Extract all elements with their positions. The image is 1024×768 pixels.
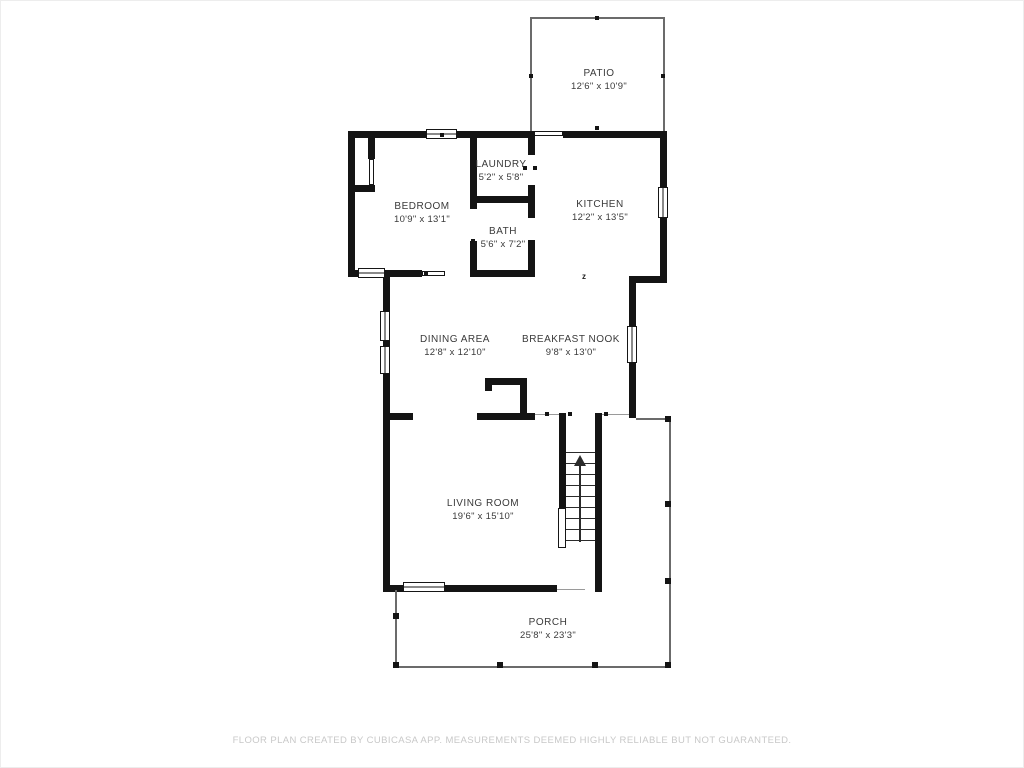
patio-tick-top [595,16,599,20]
window-dining-upper [380,311,390,341]
room-label-living-room: LIVING ROOM 19'6" x 15'10" [447,497,519,523]
room-label-breakfast-nook: BREAKFAST NOOK 9'8" x 13'0" [522,333,620,359]
wall-stair-right [595,413,602,592]
porch-post [665,501,671,507]
floor-plan-canvas: PATIO 12'6" x 10'9" LAUNDRY 5'2" x 5'8" … [0,0,1024,768]
porch-post [665,416,671,422]
tick [631,390,635,394]
tick [545,412,549,416]
patio-tick-right [661,74,665,78]
tick [424,272,428,276]
porch-post [592,662,598,668]
wall-bedroom-left [348,131,355,277]
porch-post [497,662,503,668]
wall-bath-right-upper [528,203,535,218]
wall-pantry-bottom [477,413,535,420]
tick [533,166,537,170]
closet-door [369,159,374,185]
porch-post [665,578,671,584]
wall-stair-left [559,413,566,508]
porch-outline-bottom [395,666,671,668]
stairs-up-arrow-icon [574,455,586,466]
room-label-laundry: LAUNDRY 5'2" x 5'8" [475,158,526,184]
tick [440,133,444,137]
room-label-bedroom: BEDROOM 10'9" x 13'1" [394,200,450,226]
tick [471,205,475,209]
wall-bedroom-bottom-interior [390,270,422,277]
tick [467,585,471,589]
stair-railing [558,508,566,548]
room-label-kitchen: KITCHEN 12'2" x 13'5" [572,198,628,224]
stairs-direction-line [579,466,581,542]
room-label-bath: BATH 5'6" x 7'2" [481,225,526,251]
wall-closet-right [368,131,375,159]
room-label-porch: PORCH 25'8" x 23'3" [520,616,576,642]
porch-outline-right [669,418,671,668]
patio-door [533,131,563,136]
room-label-patio: PATIO 12'6" x 10'9" [571,67,627,93]
window-dining-lower [380,346,390,374]
wall-living-left [383,413,390,592]
porch-post [393,662,399,668]
tick [604,412,608,416]
porch-outline-left [395,590,397,668]
wall-laundry-bath-divider [470,196,535,203]
wall-pantry-left-stub [485,378,492,391]
open-boundary-porch-door [557,589,585,590]
porch-post [393,613,399,619]
window-bedroom-bottom [358,268,385,278]
wall-top-right [563,131,667,138]
porch-post [665,662,671,668]
footer-disclaimer: FLOOR PLAN CREATED BY CUBICASA APP. MEAS… [0,735,1024,746]
patio-tick-bottom [595,126,599,130]
room-label-dining-area: DINING AREA 12'8" x 12'10" [420,333,490,359]
tick [568,412,572,416]
tick [471,239,475,243]
z-symbol: z [582,272,586,281]
window-kitchen-right [658,187,668,218]
window-breakfast-nook [627,326,637,363]
patio-tick-left [529,74,533,78]
wall-closet-bottom [348,185,375,192]
tick [503,272,507,276]
wall-kitchen-bottom-right [632,276,667,283]
window-living-bottom [403,582,445,592]
wall-laundry-right-upper [528,131,535,155]
